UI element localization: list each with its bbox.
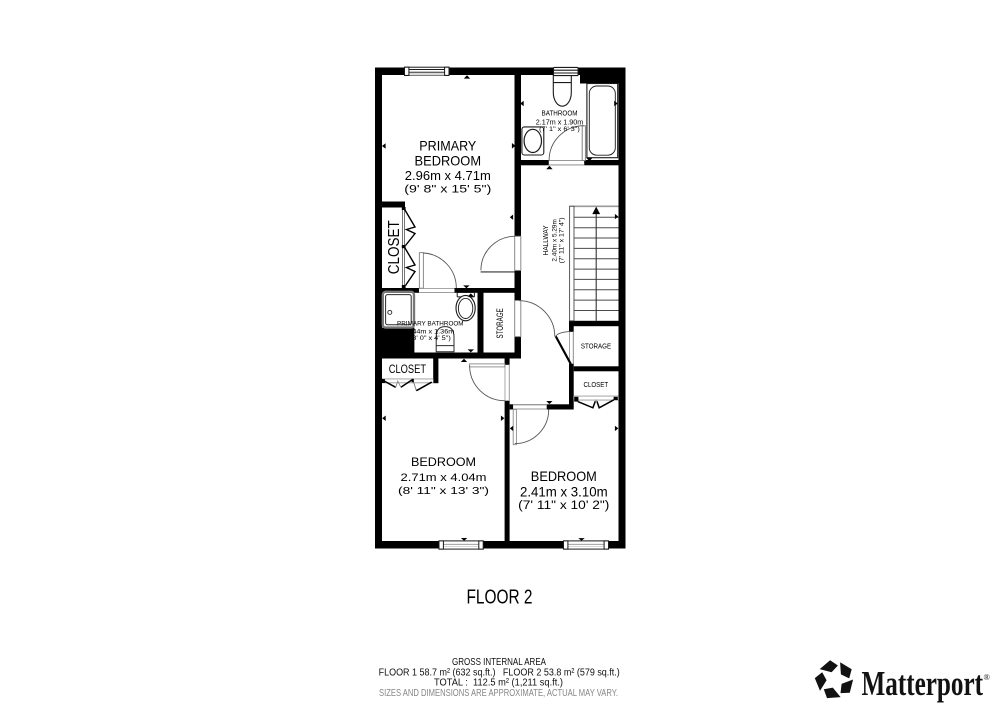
svg-text:(7' 1" x 6' 3"): (7' 1" x 6' 3") bbox=[539, 126, 580, 133]
svg-text:BEDROOM: BEDROOM bbox=[415, 153, 482, 168]
svg-text:2.71m x 4.04m: 2.71m x 4.04m bbox=[401, 472, 487, 484]
svg-text:2.41m x 3.10m: 2.41m x 3.10m bbox=[520, 484, 608, 499]
svg-text:STORAGE: STORAGE bbox=[495, 308, 506, 338]
svg-text:2.40m x 5.29m: 2.40m x 5.29m bbox=[552, 219, 559, 262]
svg-text:BEDROOM: BEDROOM bbox=[531, 468, 597, 484]
svg-text:FLOOR 2: FLOOR 2 bbox=[467, 586, 533, 609]
svg-text:BATHROOM: BATHROOM bbox=[542, 109, 578, 118]
svg-text:STORAGE: STORAGE bbox=[581, 342, 611, 351]
svg-text:GROSS INTERNAL AREA: GROSS INTERNAL AREA bbox=[452, 657, 546, 668]
svg-text:2.44m x 1.36m: 2.44m x 1.36m bbox=[406, 328, 454, 335]
svg-text:PRIMARY: PRIMARY bbox=[419, 138, 476, 153]
svg-text:HALLWAY: HALLWAY bbox=[541, 225, 550, 255]
svg-text:(8' 11" x 13' 3"): (8' 11" x 13' 3") bbox=[398, 486, 489, 497]
svg-text:Matterport: Matterport bbox=[862, 664, 984, 703]
svg-text:PRIMARY BATHROOM: PRIMARY BATHROOM bbox=[397, 320, 464, 327]
svg-text:(8' 0" x 4' 5"): (8' 0" x 4' 5") bbox=[410, 336, 451, 342]
svg-text:CLOSET: CLOSET bbox=[389, 362, 426, 376]
svg-text:(7' 11" x 17' 4"): (7' 11" x 17' 4") bbox=[559, 217, 566, 263]
svg-text:(9' 8" x 15' 5"): (9' 8" x 15' 5") bbox=[404, 183, 491, 195]
svg-text:SIZES AND DIMENSIONS ARE APPRO: SIZES AND DIMENSIONS ARE APPROXIMATE, AC… bbox=[379, 688, 618, 699]
svg-text:®: ® bbox=[984, 672, 991, 682]
svg-text:CLOSET: CLOSET bbox=[584, 380, 609, 389]
svg-text:BEDROOM: BEDROOM bbox=[411, 456, 476, 469]
svg-text:CLOSET: CLOSET bbox=[386, 220, 403, 274]
svg-text:2.96m x 4.71m: 2.96m x 4.71m bbox=[405, 168, 491, 183]
svg-text:(7' 11" x 10' 2"): (7' 11" x 10' 2") bbox=[518, 500, 609, 512]
